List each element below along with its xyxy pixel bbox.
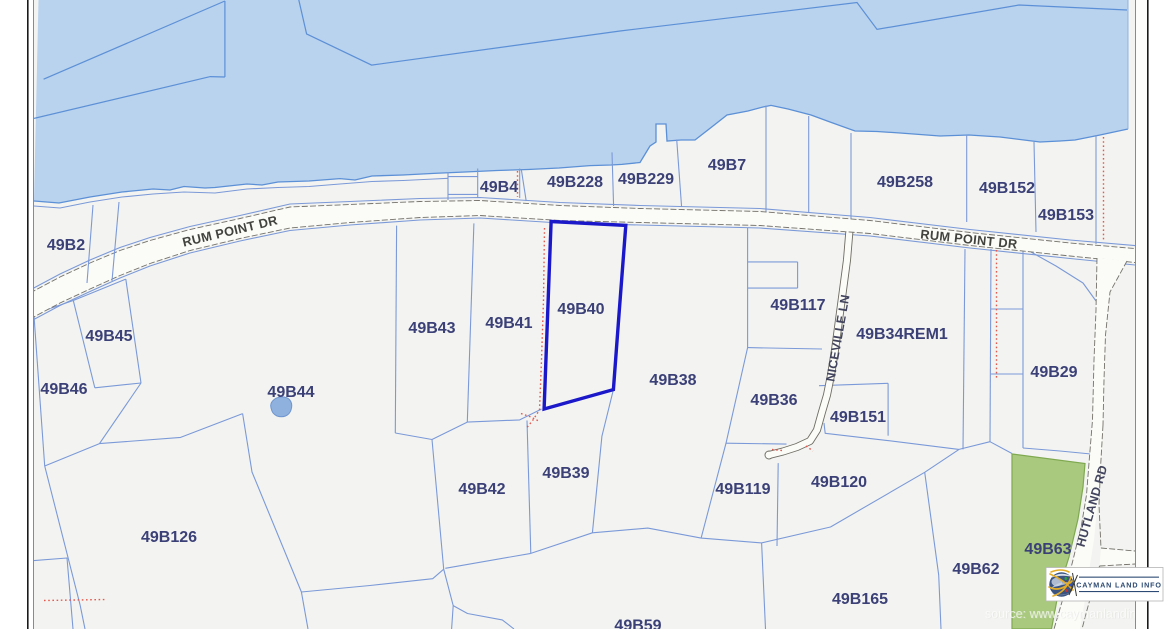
svg-text:49B229: 49B229 <box>618 171 674 188</box>
svg-text:49B63: 49B63 <box>1024 541 1071 558</box>
svg-text:49B117: 49B117 <box>770 297 825 314</box>
svg-text:49B119: 49B119 <box>715 481 770 498</box>
svg-text:49B126: 49B126 <box>141 529 197 546</box>
svg-text:49B120: 49B120 <box>811 474 867 491</box>
svg-text:49B258: 49B258 <box>877 174 933 191</box>
svg-text:49B29: 49B29 <box>1030 364 1077 381</box>
svg-text:49B152: 49B152 <box>979 180 1035 197</box>
svg-text:49B41: 49B41 <box>485 315 532 332</box>
svg-text:49B62: 49B62 <box>952 561 999 578</box>
svg-text:49B153: 49B153 <box>1038 207 1094 224</box>
svg-text:CAYMAN LAND INFO: CAYMAN LAND INFO <box>1076 580 1162 589</box>
svg-text:49B42: 49B42 <box>458 481 505 498</box>
svg-text:49B45: 49B45 <box>85 328 132 345</box>
svg-text:49B151: 49B151 <box>830 409 886 426</box>
svg-text:49B46: 49B46 <box>40 381 87 398</box>
svg-text:49B7: 49B7 <box>708 157 746 174</box>
svg-text:49B44: 49B44 <box>267 384 314 401</box>
svg-text:49B165: 49B165 <box>832 591 888 608</box>
svg-text:49B38: 49B38 <box>649 372 696 389</box>
svg-text:49B39: 49B39 <box>542 465 589 482</box>
svg-text:49B59: 49B59 <box>614 617 661 629</box>
svg-text:49B228: 49B228 <box>547 174 603 191</box>
svg-text:49B43: 49B43 <box>408 320 455 337</box>
svg-text:49B4: 49B4 <box>480 179 518 196</box>
svg-text:49B40: 49B40 <box>557 301 604 318</box>
svg-text:49B34REM1: 49B34REM1 <box>856 326 948 343</box>
svg-text:49B2: 49B2 <box>47 237 85 254</box>
svg-text:49B36: 49B36 <box>750 392 797 409</box>
